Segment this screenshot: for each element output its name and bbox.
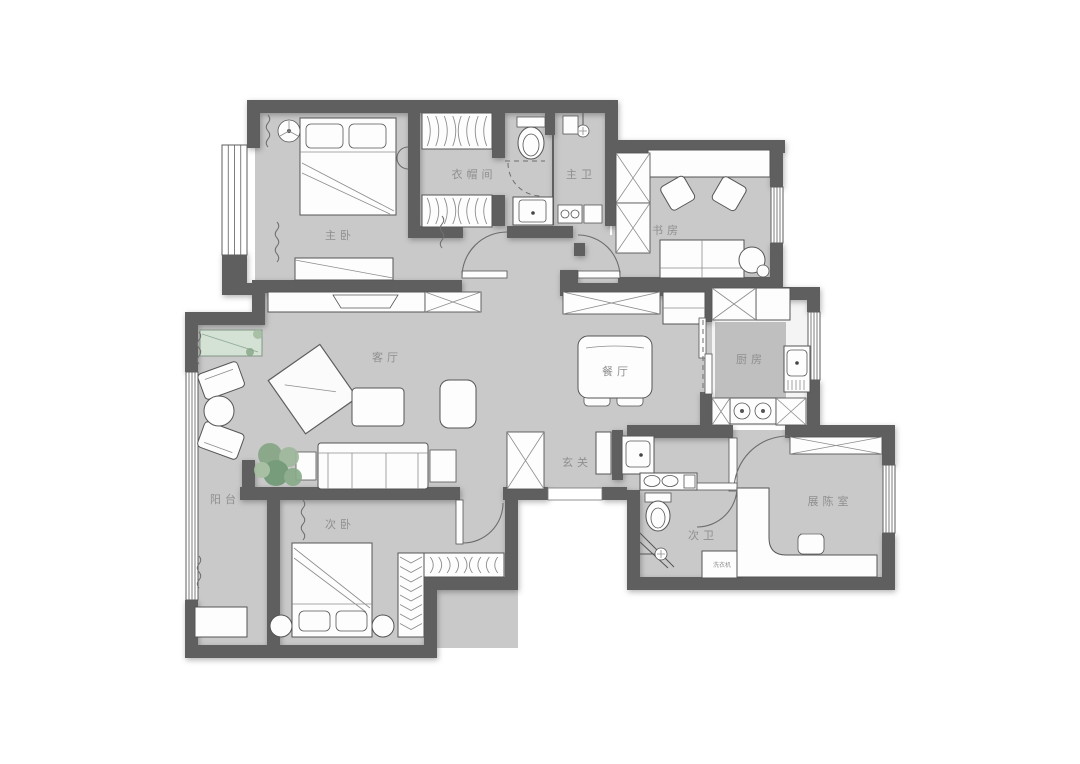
room-label-study: 书房 — [652, 224, 682, 237]
balcony-storage — [195, 607, 247, 637]
hall-left-door-leaf — [462, 271, 507, 278]
room-label-second-bedroom: 次卧 — [325, 517, 355, 531]
balcony-table — [204, 396, 234, 426]
balcony-bench — [200, 329, 263, 356]
room-label-cloakroom: 衣帽间 — [452, 167, 497, 181]
master-bed — [300, 118, 396, 215]
kitchen-stove — [730, 398, 776, 424]
room-label-second-bathroom: 次卫 — [688, 528, 718, 542]
entry-door-threshold — [548, 488, 602, 500]
lounge-pouf — [440, 380, 476, 428]
floor-plan-page: 洗衣机 — [0, 0, 1080, 764]
ceiling-fan-icon — [278, 120, 300, 142]
washing-machine: 洗衣机 — [702, 551, 742, 578]
coffee-table — [352, 388, 404, 426]
second-bedroom-door-leaf — [456, 500, 463, 544]
second-toilet — [645, 493, 671, 531]
tv-cabinet — [268, 292, 425, 312]
room-label-dining-room: 餐厅 — [602, 364, 632, 378]
entry-bench — [596, 432, 611, 474]
master-toilet — [517, 117, 545, 159]
floor-plan-drawing: 洗衣机 — [0, 0, 1080, 764]
tv-icon — [333, 295, 398, 308]
cloakroom-sink — [513, 197, 553, 225]
room-label-master-bathroom: 主卫 — [566, 168, 596, 181]
kitchen-counter-top — [756, 288, 790, 320]
kitchen-sink — [784, 346, 810, 392]
entry-sink — [622, 436, 654, 474]
room-label-display-room: 展陈室 — [808, 494, 853, 508]
second-bath-vanity — [640, 473, 697, 490]
cloakroom-wardrobe-bottom — [422, 195, 492, 227]
sofa — [296, 443, 456, 489]
room-label-living-room: 客厅 — [372, 350, 402, 364]
cloakroom-wardrobe-top — [422, 113, 492, 149]
room-label-kitchen: 厨房 — [736, 353, 766, 366]
room-label-master-bedroom: 主卧 — [325, 229, 355, 242]
room-label-entryway: 玄关 — [562, 455, 592, 469]
master-dresser — [295, 258, 393, 280]
room-label-balcony: 阳台 — [210, 492, 240, 506]
second-bathroom-door-leaf — [697, 483, 737, 490]
washing-machine-label: 洗衣机 — [713, 561, 731, 569]
second-wardrobe-horizontal — [424, 553, 504, 577]
hall-right-door-leaf — [578, 271, 620, 278]
